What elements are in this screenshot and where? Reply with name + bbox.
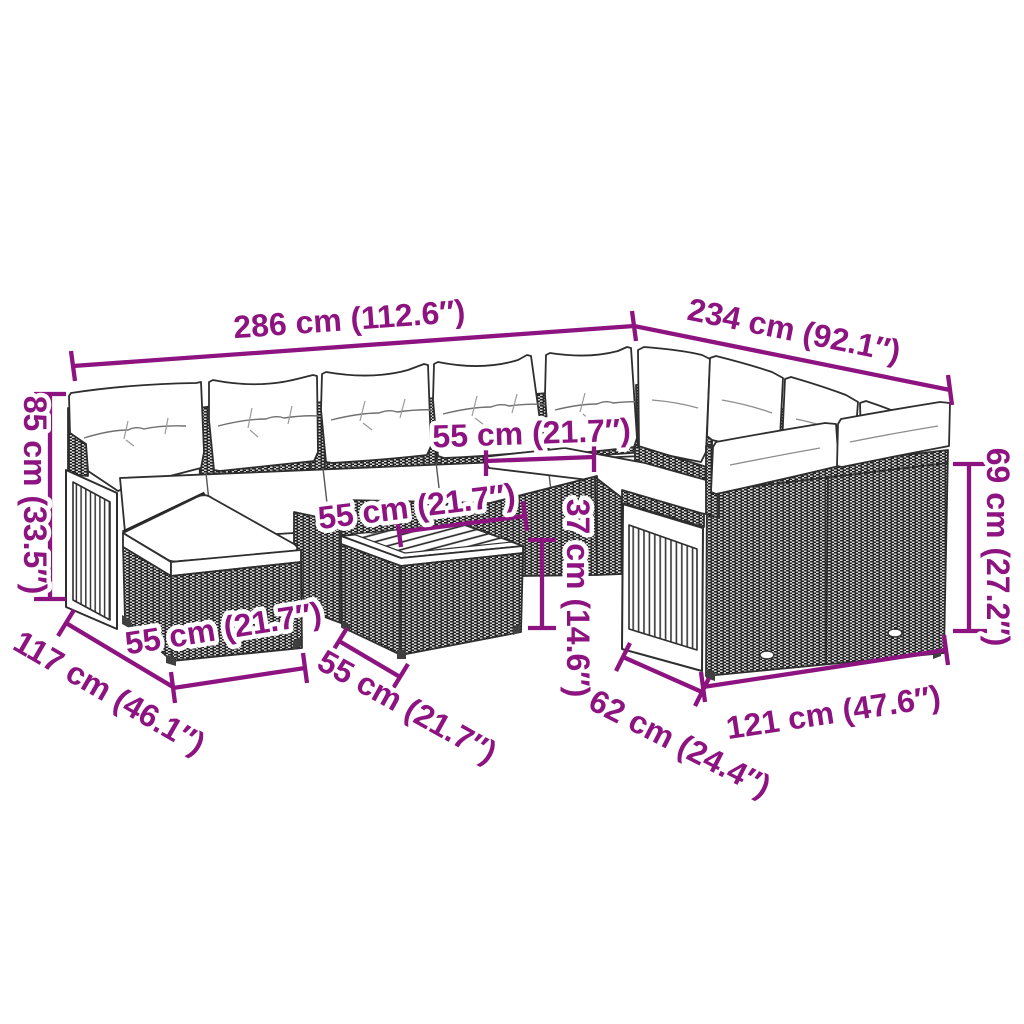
svg-text:69 cm (27.2″): 69 cm (27.2″) (980, 448, 1016, 647)
svg-text:85 cm (33.5″): 85 cm (33.5″) (17, 396, 53, 595)
svg-text:55 cm (21.7″): 55 cm (21.7″) (432, 412, 632, 455)
svg-text:37 cm (14.6″): 37 cm (14.6″) (560, 499, 596, 698)
